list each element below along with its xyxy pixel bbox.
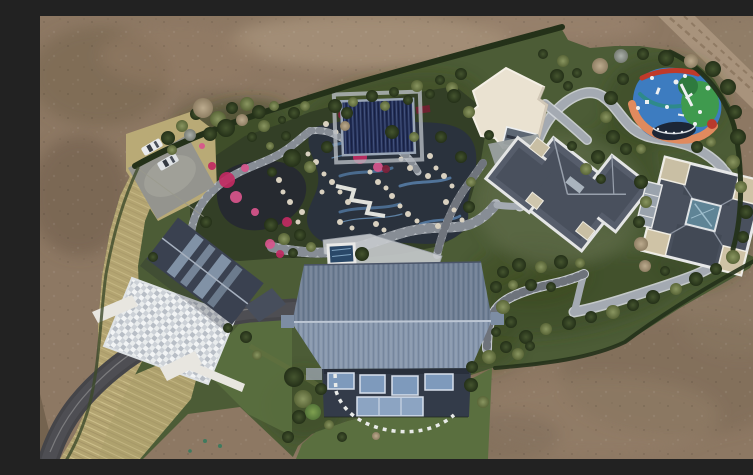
tree [737,231,749,243]
tree [315,383,327,395]
paint-mark [203,439,207,443]
tree [726,155,740,169]
paint-mark [218,444,222,448]
tree [620,143,632,155]
tree [604,91,618,105]
tree [455,151,467,163]
tree [689,272,703,286]
tree [634,175,648,189]
tree [258,120,270,132]
rock [329,179,335,185]
tree [288,107,300,119]
tree [497,266,509,278]
rock [338,190,343,195]
rock [323,121,329,127]
tree [292,410,306,424]
tree [304,161,316,173]
tree [425,89,435,99]
rock [345,199,351,205]
play-piece [636,106,640,110]
play-piece [665,105,669,109]
tree [337,432,347,442]
tree [484,130,494,140]
flower-bed [382,165,390,173]
play-piece [698,110,702,114]
roof-overhang [491,312,504,325]
tree [646,290,660,304]
tree [340,121,350,131]
flower-bed [276,250,284,258]
tree [639,260,651,272]
tree [466,361,478,373]
tree [455,68,467,80]
rock [281,190,286,195]
tree [252,350,262,360]
tree [617,73,629,85]
rock [435,223,441,229]
tree [496,300,510,314]
tree [411,80,423,92]
tree [490,281,502,293]
play-piece [645,100,649,104]
path-connector [497,205,520,206]
tree [236,114,248,126]
rock [405,211,411,217]
tree [223,323,233,333]
spa-water [330,245,354,262]
rock [384,186,389,191]
tree [567,141,577,151]
tree [606,130,620,144]
tree [525,341,535,351]
tree [730,129,746,145]
rock [382,228,387,233]
tree [266,142,274,150]
rock [276,177,282,183]
tree [726,250,740,264]
roof-ridge [292,321,492,322]
tree [585,311,597,323]
tree [240,331,252,343]
red-spot [707,119,717,129]
rock [415,219,420,224]
trampoline-dot [665,131,667,133]
rock [320,190,325,195]
tree [658,50,674,66]
tree [557,55,569,67]
rock [296,220,301,225]
tree [355,247,369,261]
tree [728,105,742,119]
rock [350,226,355,231]
roof-overhang [281,315,294,328]
paint-mark [188,449,192,453]
tree [550,69,564,83]
tree [546,282,556,292]
tree [389,87,399,97]
tree [563,81,573,91]
tree [633,216,645,228]
tree [554,255,568,269]
rock [452,208,457,213]
rock [389,193,395,199]
tree [324,420,334,430]
tree [691,141,703,153]
flower-bed [251,208,259,216]
flower-bed [230,191,242,203]
tree [505,316,517,328]
play-piece [706,86,711,91]
tree [606,305,620,319]
tree [614,49,628,63]
tree [278,116,286,124]
tree [491,327,501,337]
roof-corrugation [292,262,492,323]
tree [600,111,612,123]
rock [373,221,379,227]
tree [705,61,721,77]
rock [460,218,465,223]
tree [660,266,670,276]
tree [710,263,722,275]
tree [306,242,316,252]
tree [538,49,548,59]
tree [735,181,747,193]
lower-glass-wall [357,397,423,416]
tree [447,89,461,103]
play-piece [693,122,697,126]
tree [627,299,639,311]
roof-corrugation [292,320,492,369]
tree [403,95,413,105]
tree [466,177,476,187]
tree [706,137,716,147]
flower-bed [265,239,275,249]
tree [203,127,217,141]
tree [167,145,177,155]
rock [368,170,373,175]
tree [366,90,378,102]
play-piece [683,74,687,78]
play-piece [650,76,654,80]
tree [341,107,353,119]
spa-pool [326,242,356,265]
tree [482,350,496,364]
rock [427,153,433,159]
tree [575,258,585,268]
tree [294,229,306,241]
tree [264,218,278,232]
tree [540,323,552,335]
tree [328,99,342,113]
tree [684,54,698,68]
flower-bed [282,217,292,227]
rock [375,179,381,185]
aerial-photo-estate [40,16,753,459]
flower-bed [219,172,235,188]
tree [278,233,290,245]
trampoline-dot [657,128,659,130]
flower-bed [241,164,249,172]
trampoline-dot [673,132,675,134]
tree [477,396,489,408]
tree [435,75,445,85]
tree [464,378,478,392]
tree [637,48,649,60]
tree [636,144,646,154]
play-piece [674,80,679,85]
tree [252,105,266,119]
side-deck [306,368,322,380]
tree [591,150,605,164]
tree [372,432,380,440]
flower-bed [199,143,205,149]
tree [226,102,238,114]
rock [407,165,413,171]
tree [634,237,648,251]
tree [283,149,301,167]
tree [580,163,592,175]
tree [282,431,294,443]
tree [562,316,576,330]
tree [508,280,518,290]
tree [385,125,399,139]
tree [739,205,753,219]
tree [240,97,254,111]
tree [176,120,188,132]
rock [434,166,439,171]
trampoline-dot [681,131,683,133]
tree [267,167,277,177]
rock [450,184,455,189]
tree [409,132,419,142]
tree [300,101,310,111]
tree [247,132,257,142]
tree [463,106,475,118]
tree [535,261,547,273]
tree [596,174,606,184]
rock [425,173,431,179]
tree [592,58,608,74]
tree [640,196,652,208]
rock [398,204,403,209]
pavilion-roof-ribs [341,99,415,155]
flower-bed [373,162,383,172]
tree [525,279,537,291]
rock [299,209,305,215]
tree [500,341,512,353]
tree [572,68,582,78]
tree [512,348,524,360]
tree [380,101,390,111]
tree [269,101,279,111]
tree [161,131,175,145]
tree [321,141,333,153]
rock [306,152,311,157]
tree [284,367,304,387]
tree [435,131,447,143]
rock [337,219,343,225]
tree [305,404,321,420]
rock [287,199,293,205]
tree [670,283,682,295]
tree [463,201,475,213]
tree [348,97,358,107]
tree [217,119,235,137]
rock [322,172,327,177]
rock [441,173,447,179]
tree [148,252,158,262]
flower-bed [208,162,216,170]
tree [200,216,212,228]
tree [512,258,526,272]
tree [288,248,298,258]
tree [184,129,196,141]
rock [443,199,449,205]
tree [281,131,291,141]
tree [720,79,736,95]
tree [193,98,213,118]
